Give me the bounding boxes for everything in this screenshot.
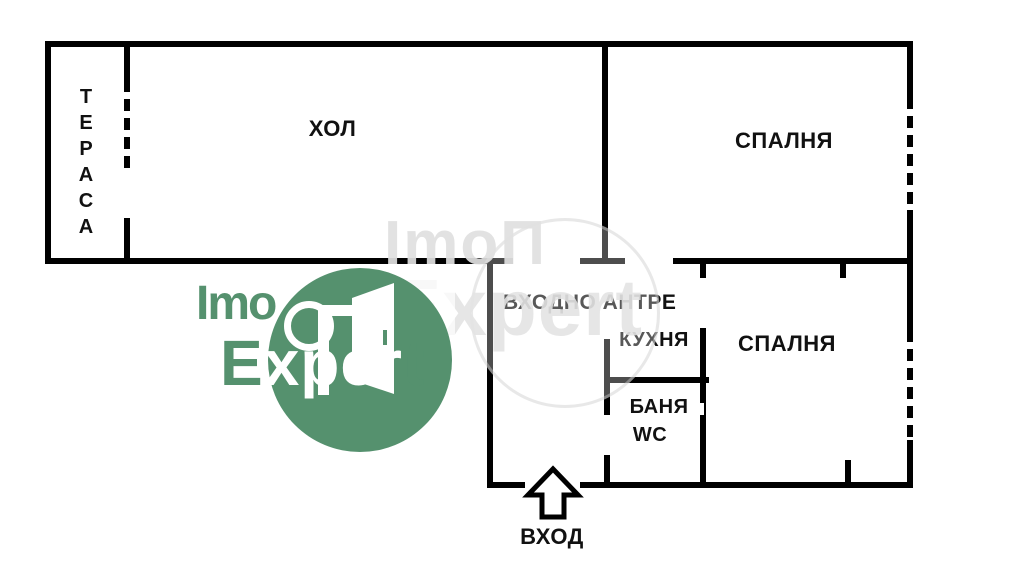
room-label-bath: БАНЯ [619,396,699,419]
room-label-bedroom2: СПАЛНЯ [727,331,847,357]
logo-letter-t: t [403,327,425,399]
entrance-label: ВХОД [507,524,597,550]
bedroom2-window [907,330,913,440]
room-label-wc: WC [610,424,690,447]
wall-bedroom2-left-stub [700,258,706,278]
room-label-hall: ХОЛ [290,116,375,142]
wall-left-outer [45,41,51,264]
wall-entry-left [487,258,493,488]
wall-mid-left [45,258,513,264]
room-label-bedroom1: СПАЛНЯ [724,128,844,154]
wall-right-outer-1 [907,41,913,97]
terrace-window [124,80,130,170]
wall-kitchen-bath-divider [604,377,709,383]
logo-text-expert: Expert [220,326,425,400]
wall-hall-bedroom1-divider [602,41,608,264]
terrace-letter: Е [79,110,92,136]
terrace-letter: А [79,214,93,240]
wall-right-outer-3 [907,440,913,488]
entrance-arrow-icon [520,462,586,524]
logo-letter-e: E [220,327,264,399]
wall-terrace-divider-top [124,41,130,80]
room-label-entry: ВХОДНО АНТРЕ [503,291,673,315]
floorplan-canvas: Т Е Р А С А ХОЛ СПАЛНЯ ВХОДНО АНТРЕ КУХН… [0,0,1012,578]
wall-bath-left-lower [604,455,610,488]
terrace-letter: С [79,188,93,214]
wall-right-outer-2 [907,210,913,330]
terrace-letter: Т [80,84,92,110]
room-label-terrace: Т Е Р А С А [66,84,106,240]
wall-stub-bedroom2-top [840,258,846,278]
bedroom1-window [907,97,913,210]
logo-text-imo: Imo [196,276,275,331]
terrace-letter: Р [79,136,92,162]
terrace-letter: А [79,162,93,188]
room-label-kitchen: КУХНЯ [614,329,694,352]
wall-top-outer [45,41,913,47]
wall-terrace-divider-bottom [124,218,130,264]
logo-letters-xper: xper [264,327,403,399]
bath-wall-notch [700,403,704,415]
wall-stub-bedroom2-bottom [845,460,851,482]
wall-kitchen-left [604,339,610,415]
wall-bottom-right [580,482,913,488]
wall-mid-right [673,258,913,264]
